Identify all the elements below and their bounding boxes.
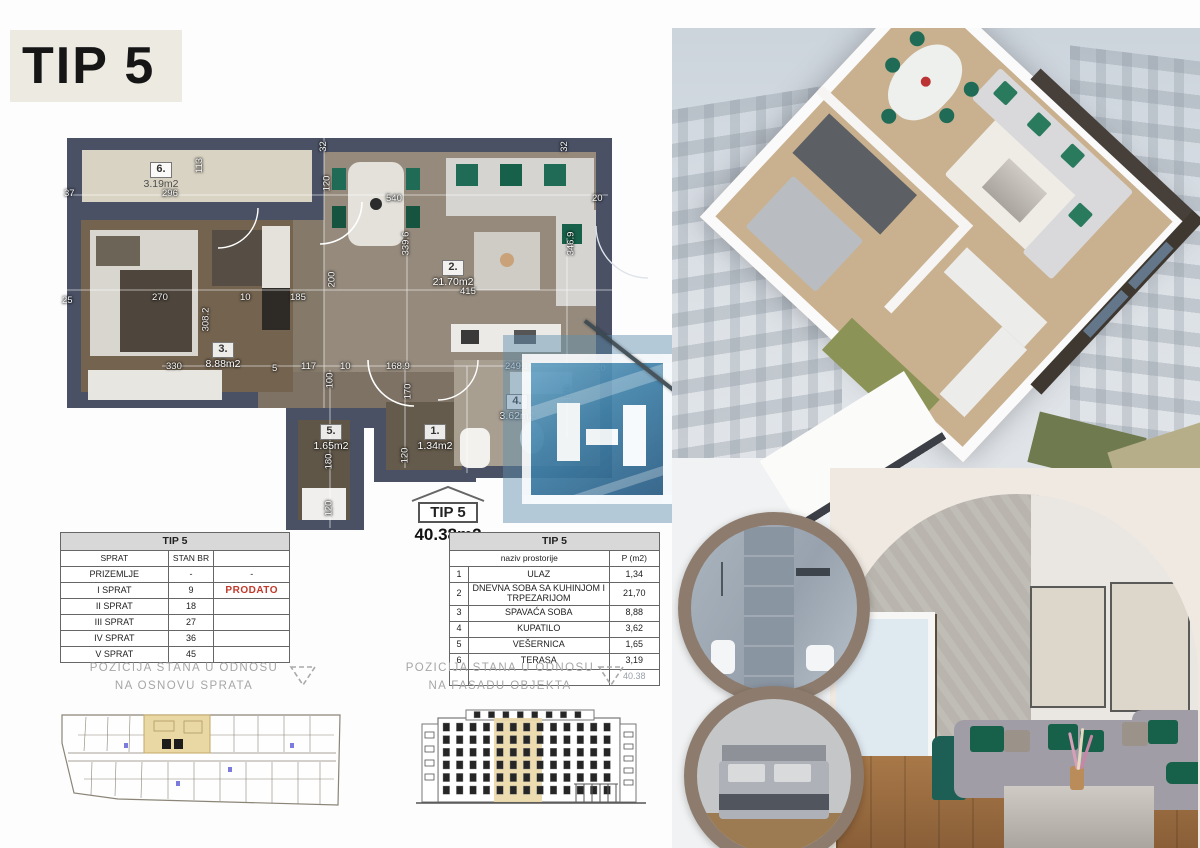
caption-floor-line2: NA OSNOVU SPRATA xyxy=(84,678,284,696)
table-row: II SPRAT18 xyxy=(61,599,290,615)
photo-living-room xyxy=(830,468,1200,848)
shower-bar xyxy=(721,562,723,596)
col-note xyxy=(214,551,290,567)
wall-art-frame xyxy=(1110,582,1190,712)
floors-table-title: TIP 5 xyxy=(61,533,290,551)
floors-table: TIP 5 SPRAT STAN BR PRIZEMLJE--I SPRAT9P… xyxy=(60,532,290,663)
bed-pillow xyxy=(774,764,811,782)
col-stan-br: STAN BR xyxy=(168,551,214,567)
stamp-type-label: TIP 5 xyxy=(418,502,478,523)
caption-floor-position: POZICIJA STANA U ODNOSU NA OSNOVU SPRATA xyxy=(84,660,284,696)
rooms-table-title: TIP 5 xyxy=(450,533,660,551)
logo-bar-center xyxy=(586,429,618,445)
brochure-page: TIP 5 xyxy=(0,0,1200,848)
logo-frame xyxy=(522,354,672,504)
table-row: 1ULAZ1,34 xyxy=(450,567,660,583)
toilet xyxy=(711,640,735,674)
green-pillow xyxy=(970,726,1004,752)
col-naziv: naziv prostorije xyxy=(450,551,610,567)
table-row: III SPRAT27 xyxy=(61,615,290,631)
watermark-logo xyxy=(505,337,689,521)
taupe-pillow xyxy=(1004,730,1030,752)
arch-opening xyxy=(836,494,1198,848)
taupe-pillow xyxy=(1122,722,1148,746)
inset-bathroom-photo xyxy=(678,512,870,704)
table-row: 5VEŠERNICA1,65 xyxy=(450,637,660,653)
mirror-shelf xyxy=(796,568,830,576)
wall-art-frame xyxy=(1030,586,1106,708)
col-sprat: SPRAT xyxy=(61,551,169,567)
floors-table-body: TIP 5 SPRAT STAN BR PRIZEMLJE--I SPRAT9P… xyxy=(61,533,290,663)
logo-door-right xyxy=(623,405,645,466)
logo-streak xyxy=(522,354,672,426)
roof-icon xyxy=(410,484,486,502)
bed-runner xyxy=(719,794,830,809)
bed-pillow xyxy=(728,764,765,782)
table-row: IV SPRAT36 xyxy=(61,631,290,647)
page-title-box: TIP 5 xyxy=(10,30,182,102)
caption-facade-line1: POZICIJA STANA U ODNOSU xyxy=(400,660,600,678)
green-throw xyxy=(1166,762,1198,784)
table-row: PRIZEMLJE-- xyxy=(61,567,290,583)
tile-column xyxy=(744,525,794,691)
table-row: 3SPAVAĆA SOBA8,88 xyxy=(450,605,660,621)
table-row: I SPRAT9PRODATO xyxy=(61,583,290,599)
floor-overview-diagram xyxy=(58,703,348,843)
down-arrow-icon xyxy=(596,663,626,689)
caption-facade-line2: NA FASADU OBJEKTA xyxy=(400,678,600,696)
caption-floor-line1: POZICIJA STANA U ODNOSU xyxy=(84,660,284,678)
col-area: P (m2) xyxy=(609,551,659,567)
page-title: TIP 5 xyxy=(10,36,155,96)
facade-diagram xyxy=(408,702,653,842)
photo-panel xyxy=(672,28,1200,848)
coffee-table xyxy=(1004,786,1154,848)
green-pillow xyxy=(1148,720,1178,744)
caption-facade-position: POZICIJA STANA U ODNOSU NA FASADU OBJEKT… xyxy=(400,660,600,696)
logo-streak xyxy=(522,449,672,504)
table-row: 2DNEVNA SOBA SA KUHINJOM I TRPEZARIJOM21… xyxy=(450,583,660,606)
bidet xyxy=(806,645,834,671)
table-row: 4KUPATILO3,62 xyxy=(450,621,660,637)
logo-door-left xyxy=(557,403,579,461)
down-arrow-icon xyxy=(288,663,318,689)
